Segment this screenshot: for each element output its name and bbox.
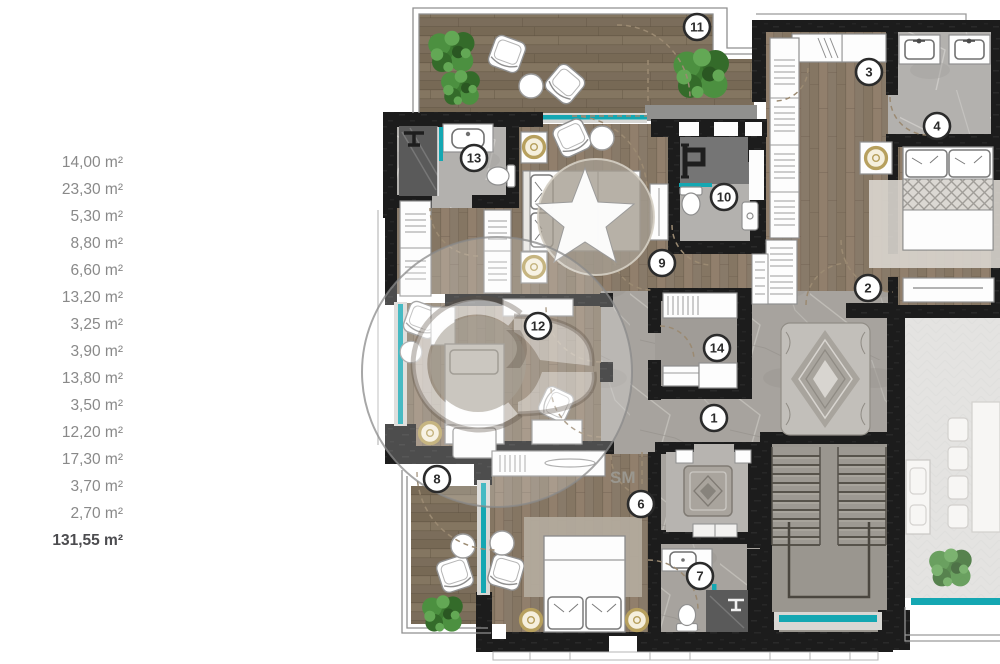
svg-text:3: 3 (865, 65, 872, 80)
svg-text:2,70 m²: 2,70 m² (70, 505, 123, 522)
svg-text:12,20 m²: 12,20 m² (62, 424, 123, 441)
svg-text:23,30 m²: 23,30 m² (62, 181, 123, 198)
svg-text:14,00 m²: 14,00 m² (62, 154, 123, 171)
svg-text:3,90 m²: 3,90 m² (70, 343, 123, 360)
svg-text:7: 7 (696, 569, 703, 584)
svg-text:10: 10 (717, 190, 731, 205)
svg-text:8: 8 (433, 472, 440, 487)
svg-text:3,25 m²: 3,25 m² (70, 316, 123, 333)
svg-text:12: 12 (531, 319, 545, 334)
svg-text:11: 11 (690, 20, 704, 35)
svg-text:1: 1 (710, 411, 717, 426)
svg-text:17,30 m²: 17,30 m² (62, 451, 123, 468)
svg-text:3,50 m²: 3,50 m² (70, 397, 123, 414)
svg-text:13,20 m²: 13,20 m² (62, 289, 123, 306)
svg-text:131,55 m²: 131,55 m² (52, 532, 123, 549)
svg-text:13,80 m²: 13,80 m² (62, 370, 123, 387)
svg-text:2: 2 (864, 281, 871, 296)
svg-text:5,30 m²: 5,30 m² (70, 208, 123, 225)
svg-text:9: 9 (658, 256, 665, 271)
svg-text:3,70 m²: 3,70 m² (70, 478, 123, 495)
svg-text:6: 6 (637, 497, 644, 512)
svg-text:SM: SM (610, 468, 636, 487)
svg-text:14: 14 (710, 341, 725, 356)
svg-text:13: 13 (467, 151, 481, 166)
svg-text:4: 4 (933, 119, 941, 134)
svg-text:6,60 m²: 6,60 m² (70, 262, 123, 279)
svg-text:8,80 m²: 8,80 m² (70, 235, 123, 252)
